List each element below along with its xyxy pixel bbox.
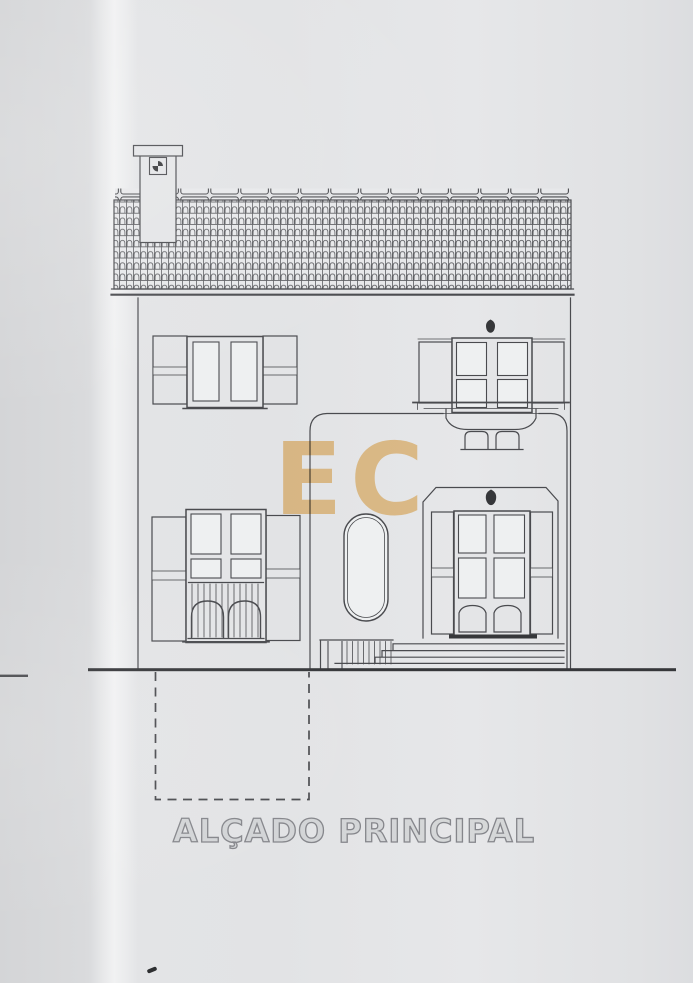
window-pane xyxy=(191,514,221,554)
door-pane xyxy=(459,558,487,598)
shutter-right xyxy=(531,342,564,403)
roof xyxy=(112,189,574,295)
finial-icon xyxy=(486,490,496,506)
ground-line xyxy=(0,668,676,677)
window-upper-left xyxy=(153,336,297,409)
window-upper-right xyxy=(413,320,569,450)
shutter-left xyxy=(419,342,452,403)
roof-tiles xyxy=(114,200,571,289)
door-lower-right xyxy=(423,488,558,639)
scanned-paper: EC ALÇADO PRINCIPAL xyxy=(0,0,693,983)
stair-newel xyxy=(328,642,342,669)
door-pane xyxy=(494,558,525,598)
window-pane xyxy=(231,559,261,578)
entrance-stairs xyxy=(320,640,564,668)
chimney-cap xyxy=(134,146,183,157)
stair-railing xyxy=(347,642,391,665)
dashed-boundary xyxy=(156,672,310,800)
window-pane xyxy=(231,342,257,401)
window-pane xyxy=(498,343,528,376)
window-pane xyxy=(193,342,219,401)
window-pane xyxy=(191,559,221,578)
window-pane xyxy=(231,514,261,554)
chimney xyxy=(134,146,183,243)
threshold xyxy=(449,635,537,639)
watermark: EC xyxy=(274,430,432,530)
ridge-tiles xyxy=(115,189,570,201)
door-pane xyxy=(494,515,525,553)
drawing-title: ALÇADO PRINCIPAL xyxy=(144,812,564,850)
finial-icon xyxy=(486,320,495,333)
window-pane xyxy=(457,343,487,376)
door-pane xyxy=(459,515,487,553)
